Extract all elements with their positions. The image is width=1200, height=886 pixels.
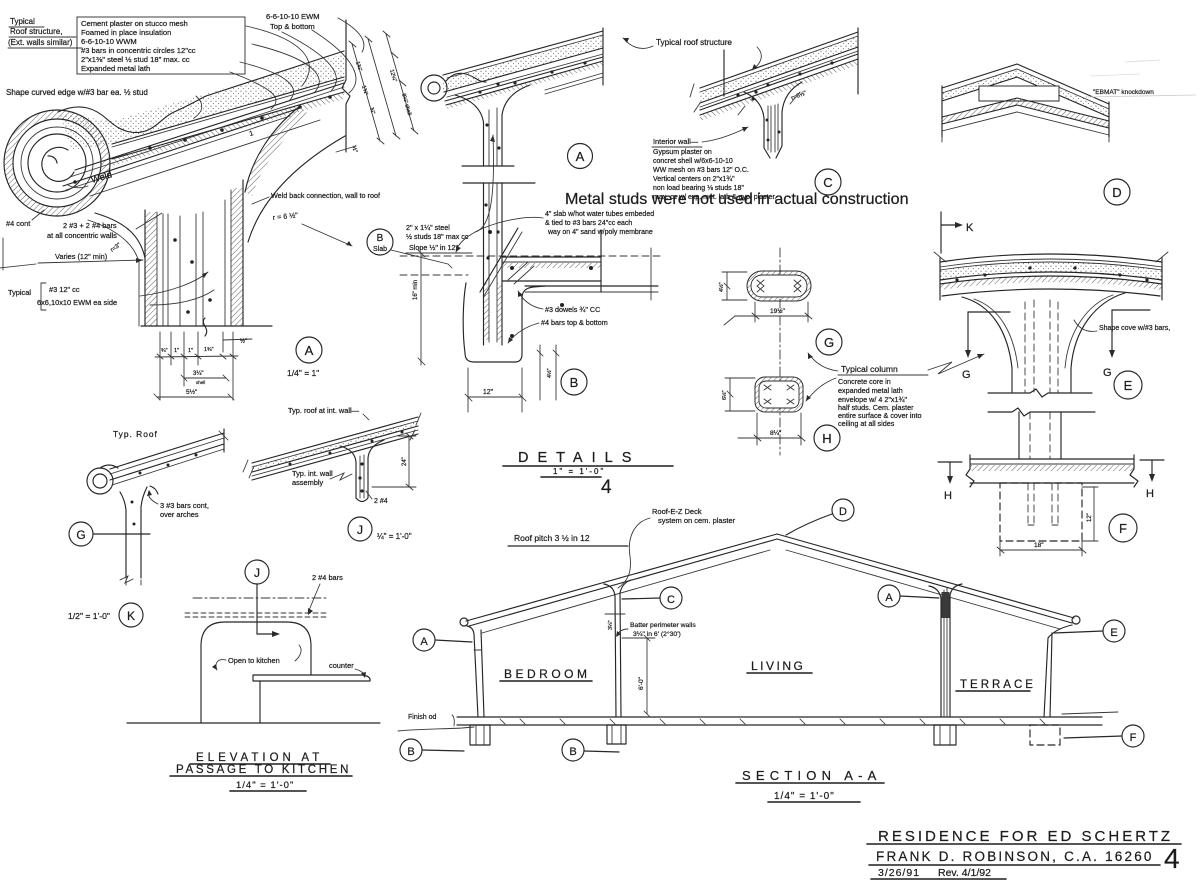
svg-text:C: C: [667, 594, 675, 606]
svg-text:Interior wall—: Interior wall—: [653, 137, 699, 146]
svg-text:3 #3 bars cont,: 3 #3 bars cont,: [160, 501, 209, 510]
svg-text:"EBMAT" knockdown: "EBMAT" knockdown: [1093, 89, 1154, 96]
svg-text:D: D: [1112, 185, 1121, 200]
svg-text:½": ½": [240, 338, 247, 345]
svg-text:6'-0": 6'-0": [638, 676, 645, 690]
svg-text:#4 cont: #4 cont: [6, 219, 30, 228]
svg-text:B: B: [569, 746, 576, 758]
svg-text:C: C: [823, 175, 832, 190]
svg-text:Vertical centers on 2"x1¾": Vertical centers on 2"x1¾": [653, 176, 735, 183]
svg-text:WW mesh on #3 bars 12" O.C.: WW mesh on #3 bars 12" O.C.: [653, 167, 749, 174]
svg-text:K: K: [127, 609, 135, 623]
svg-text:3¼" in 6' (2°30'): 3¼" in 6' (2°30'): [633, 630, 681, 638]
svg-text:over arches: over arches: [160, 510, 199, 519]
svg-text:G: G: [962, 369, 971, 381]
svg-text:4" slab w/hot water tubes embe: 4" slab w/hot water tubes embeded: [545, 211, 654, 218]
svg-text:2"x1⅜" steel ½ stud 18" max. c: 2"x1⅜" steel ½ stud 18" max. cc: [81, 55, 190, 64]
svg-text:SECTION A-A: SECTION A-A: [742, 768, 882, 783]
svg-text:expanded metal lath: expanded metal lath: [838, 386, 903, 395]
svg-text:B: B: [570, 375, 579, 390]
svg-text:Expanded metal lath: Expanded metal lath: [81, 64, 150, 73]
svg-text:Cement plaster on stucco mesh: Cement plaster on stucco mesh: [81, 19, 188, 28]
svg-text:Open to kitchen: Open to kitchen: [228, 656, 280, 665]
svg-text:F: F: [1119, 521, 1127, 536]
svg-text:5½": 5½": [186, 388, 198, 396]
svg-text:RESIDENCE FOR ED SCHERTZ: RESIDENCE FOR ED SCHERTZ: [878, 828, 1173, 845]
svg-text:1/4" = 1": 1/4" = 1": [287, 368, 319, 378]
svg-text:(Ext. walls similar): (Ext. walls similar): [8, 38, 73, 47]
svg-text:12": 12": [1087, 513, 1093, 522]
svg-text:H: H: [944, 490, 952, 502]
svg-text:2" x 1¼" steel: 2" x 1¼" steel: [406, 223, 450, 232]
svg-text:#3 dowels ¾" CC: #3 dowels ¾" CC: [545, 305, 600, 314]
svg-text:6-6-10-10 WWM: 6-6-10-10 WWM: [81, 37, 137, 46]
svg-text:FRANK D. ROBINSON, C.A. 1626: FRANK D. ROBINSON, C.A. 16260: [876, 849, 1154, 864]
svg-text:1/4" = 1'-0": 1/4" = 1'-0": [236, 780, 294, 791]
svg-text:3¼": 3¼": [193, 371, 203, 377]
svg-text:Typical: Typical: [10, 17, 35, 26]
svg-text:shell: shell: [196, 380, 205, 385]
svg-text:way on 4" sand w/poly membrane: way on 4" sand w/poly membrane: [547, 229, 653, 236]
svg-text:B: B: [377, 233, 384, 244]
svg-text:A: A: [305, 343, 314, 358]
svg-text:concret shell w/6x6-10-10: concret shell w/6x6-10-10: [653, 158, 733, 165]
svg-text:2 #3 + 2 #4 bars: 2 #3 + 2 #4 bars: [63, 221, 117, 230]
svg-text:12": 12": [483, 389, 494, 396]
svg-text:4: 4: [601, 477, 612, 498]
svg-text:ELEVATION AT: ELEVATION AT: [196, 752, 323, 764]
svg-text:#3 bars in concentric circles: #3 bars in concentric circles 12"cc: [81, 46, 196, 55]
svg-text:1": 1": [188, 348, 193, 354]
svg-text:ceiling at all sides: ceiling at all sides: [838, 419, 895, 428]
svg-text:16" min: 16" min: [413, 280, 419, 300]
svg-text:Roof-E-Z Deck: Roof-E-Z Deck: [652, 507, 702, 516]
svg-text:1¾": 1¾": [204, 347, 214, 353]
svg-text:4½": 4½": [718, 282, 725, 292]
svg-text:TERRACE: TERRACE: [960, 679, 1036, 691]
svg-text:& tied to #3 bars 24"cc each: & tied to #3 bars 24"cc each: [545, 220, 632, 227]
svg-text:1": 1": [174, 348, 179, 354]
svg-text:Batter perimeter walls: Batter perimeter walls: [630, 622, 696, 629]
svg-text:Typical: Typical: [8, 288, 31, 297]
svg-text:Top & bottom: Top & bottom: [270, 22, 315, 31]
svg-text:F: F: [1130, 732, 1137, 744]
svg-text:Concrete core in: Concrete core in: [838, 377, 891, 386]
svg-text:J: J: [357, 523, 363, 537]
svg-text:#4 bars top & bottom: #4 bars top & bottom: [541, 318, 608, 327]
svg-text:Weld back connection, wall to: Weld back connection, wall to roof: [271, 191, 380, 200]
svg-text:PASSAGE TO KITCHEN: PASSAGE TO KITCHEN: [176, 764, 351, 776]
svg-text:J: J: [254, 566, 260, 580]
svg-text:G: G: [1103, 367, 1112, 379]
svg-text:H: H: [822, 431, 831, 446]
svg-text:D: D: [839, 506, 847, 518]
svg-text:Slab: Slab: [373, 246, 387, 253]
svg-text:A: A: [576, 149, 585, 164]
svg-text:¼" = 1'-0": ¼" = 1'-0": [377, 532, 412, 541]
svg-text:B: B: [407, 746, 414, 758]
svg-text:2 #4 bars: 2 #4 bars: [312, 573, 343, 582]
svg-text:Finish od: Finish od: [408, 714, 437, 721]
svg-text:1/2" = 1'-0": 1/2" = 1'-0": [68, 611, 110, 621]
svg-text:Gypsum plaster on: Gypsum plaster on: [653, 149, 712, 156]
svg-text:DETAILS: DETAILS: [518, 450, 640, 466]
svg-text:Typical roof structure: Typical roof structure: [656, 38, 732, 47]
svg-text:assembly: assembly: [292, 478, 324, 487]
svg-text:LIVING: LIVING: [751, 659, 805, 673]
svg-text:counter: counter: [329, 661, 354, 670]
svg-text:Typical column: Typical column: [841, 364, 898, 374]
svg-text:A: A: [420, 636, 428, 648]
svg-text:at all concentric walls: at all concentric walls: [47, 231, 117, 240]
svg-text:1/4" = 1'-0": 1/4" = 1'-0": [774, 791, 835, 802]
svg-text:Typ. Roof: Typ. Roof: [113, 429, 158, 439]
svg-text:Shape cove w/#3 bars,: Shape cove w/#3 bars,: [1099, 325, 1170, 332]
svg-text:Foamed in place insulation: Foamed in place insulation: [81, 28, 171, 37]
svg-text:G: G: [76, 528, 85, 542]
svg-text:6½": 6½": [721, 390, 728, 400]
svg-text:Slope ½" in 12": Slope ½" in 12": [409, 243, 459, 252]
svg-text:24": 24": [402, 457, 408, 466]
svg-text:#3 12" cc: #3 12" cc: [49, 285, 80, 294]
svg-text:4: 4: [1164, 843, 1180, 874]
svg-text:Varies (12" min): Varies (12" min): [55, 252, 107, 261]
svg-text:18": 18": [1034, 542, 1044, 549]
svg-text:½ studs 18" max cc: ½ studs 18" max cc: [406, 232, 469, 241]
svg-text:19½": 19½": [770, 307, 786, 315]
svg-text:BEDROOM: BEDROOM: [504, 667, 591, 681]
svg-text:G: G: [824, 335, 834, 350]
svg-text:Shape curved edge w/#3 bar ea.: Shape curved edge w/#3 bar ea. ½ stud: [6, 88, 148, 97]
svg-text:Roof pitch 3 ½ in 12: Roof pitch 3 ½ in 12: [514, 533, 590, 543]
svg-text:3/26/91: 3/26/91: [878, 867, 920, 879]
svg-text:6-6-10-10 EWM: 6-6-10-10 EWM: [266, 12, 320, 21]
svg-text:system on cem. plaster: system on cem. plaster: [658, 516, 736, 525]
svg-text:Roof structure,: Roof structure,: [10, 27, 62, 36]
svg-text:E: E: [1124, 378, 1133, 393]
svg-text:¾": ¾": [161, 348, 168, 354]
svg-text:Typ. int. wall: Typ. int. wall: [292, 469, 333, 478]
svg-text:2 #4: 2 #4: [374, 498, 388, 505]
svg-text:Metal studs were not used in a: Metal studs were not used in actual cons…: [565, 190, 909, 208]
svg-text:H: H: [1146, 488, 1154, 500]
svg-text:1" = 1'-0": 1" = 1'-0": [553, 467, 605, 476]
svg-text:A: A: [885, 592, 893, 604]
svg-text:6x6,10x10 EWM ea side: 6x6,10x10 EWM ea side: [37, 298, 117, 307]
svg-text:8¼": 8¼": [770, 430, 782, 437]
svg-text:4½": 4½": [546, 368, 553, 378]
svg-text:E: E: [1110, 627, 1117, 639]
svg-text:Typ. roof at int. wall—: Typ. roof at int. wall—: [288, 406, 360, 415]
svg-text:Rev. 4/1/92: Rev. 4/1/92: [938, 867, 991, 879]
svg-text:K: K: [966, 222, 974, 234]
svg-text:3¼": 3¼": [608, 620, 614, 630]
